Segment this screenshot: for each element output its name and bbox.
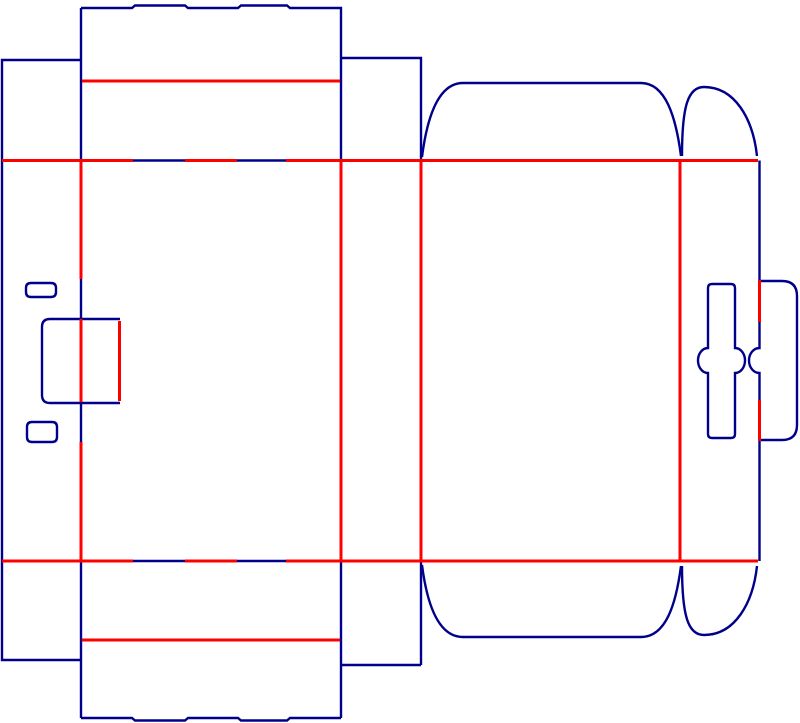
bottom-curved-dust-flap [422,565,681,637]
bottom-flap-wavy-edge [81,718,341,721]
handle-slot [698,284,745,438]
right-fold-cut-segments-with-thumb-notch [749,161,760,562]
top-curved-dust-flap [422,83,681,157]
box-dieline-drawing [0,0,800,723]
left-slot-bottom [27,422,57,442]
top-side-flap-rect [341,58,421,161]
top-flap-wavy-edge [81,6,341,161]
top-petal-flap [682,87,757,156]
bottom-petal-flap [682,566,757,635]
bottom-side-flap-rect [341,561,421,718]
left-slot-top [26,283,56,297]
dieline-canvas [0,0,800,723]
right-handle-tab [760,281,797,440]
